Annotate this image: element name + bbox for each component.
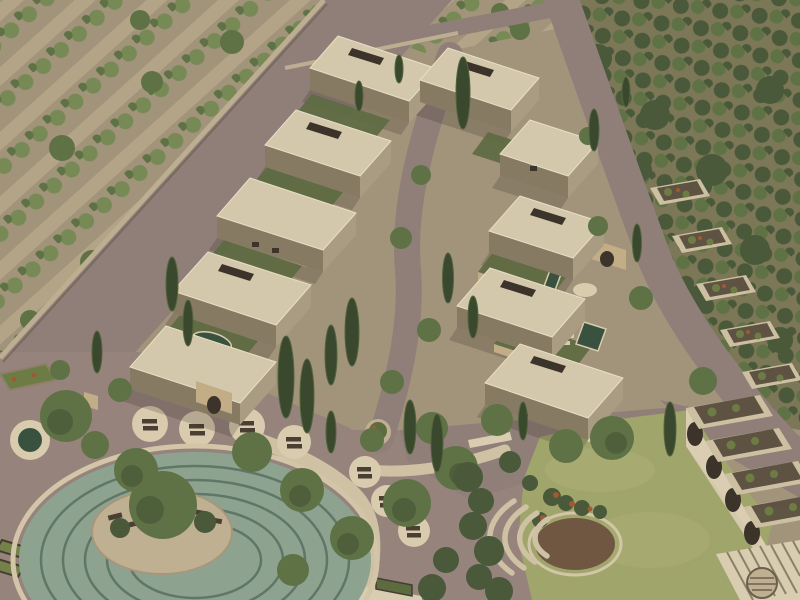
- pavilion-arch: [600, 251, 614, 267]
- resort-aerial-render: [0, 0, 800, 600]
- facade-arch: [207, 396, 221, 414]
- round-grille: [747, 568, 777, 598]
- window: [252, 242, 259, 247]
- lawn-circle: [535, 518, 615, 570]
- window: [530, 166, 537, 171]
- window: [272, 248, 279, 253]
- render-viewport: [0, 0, 800, 600]
